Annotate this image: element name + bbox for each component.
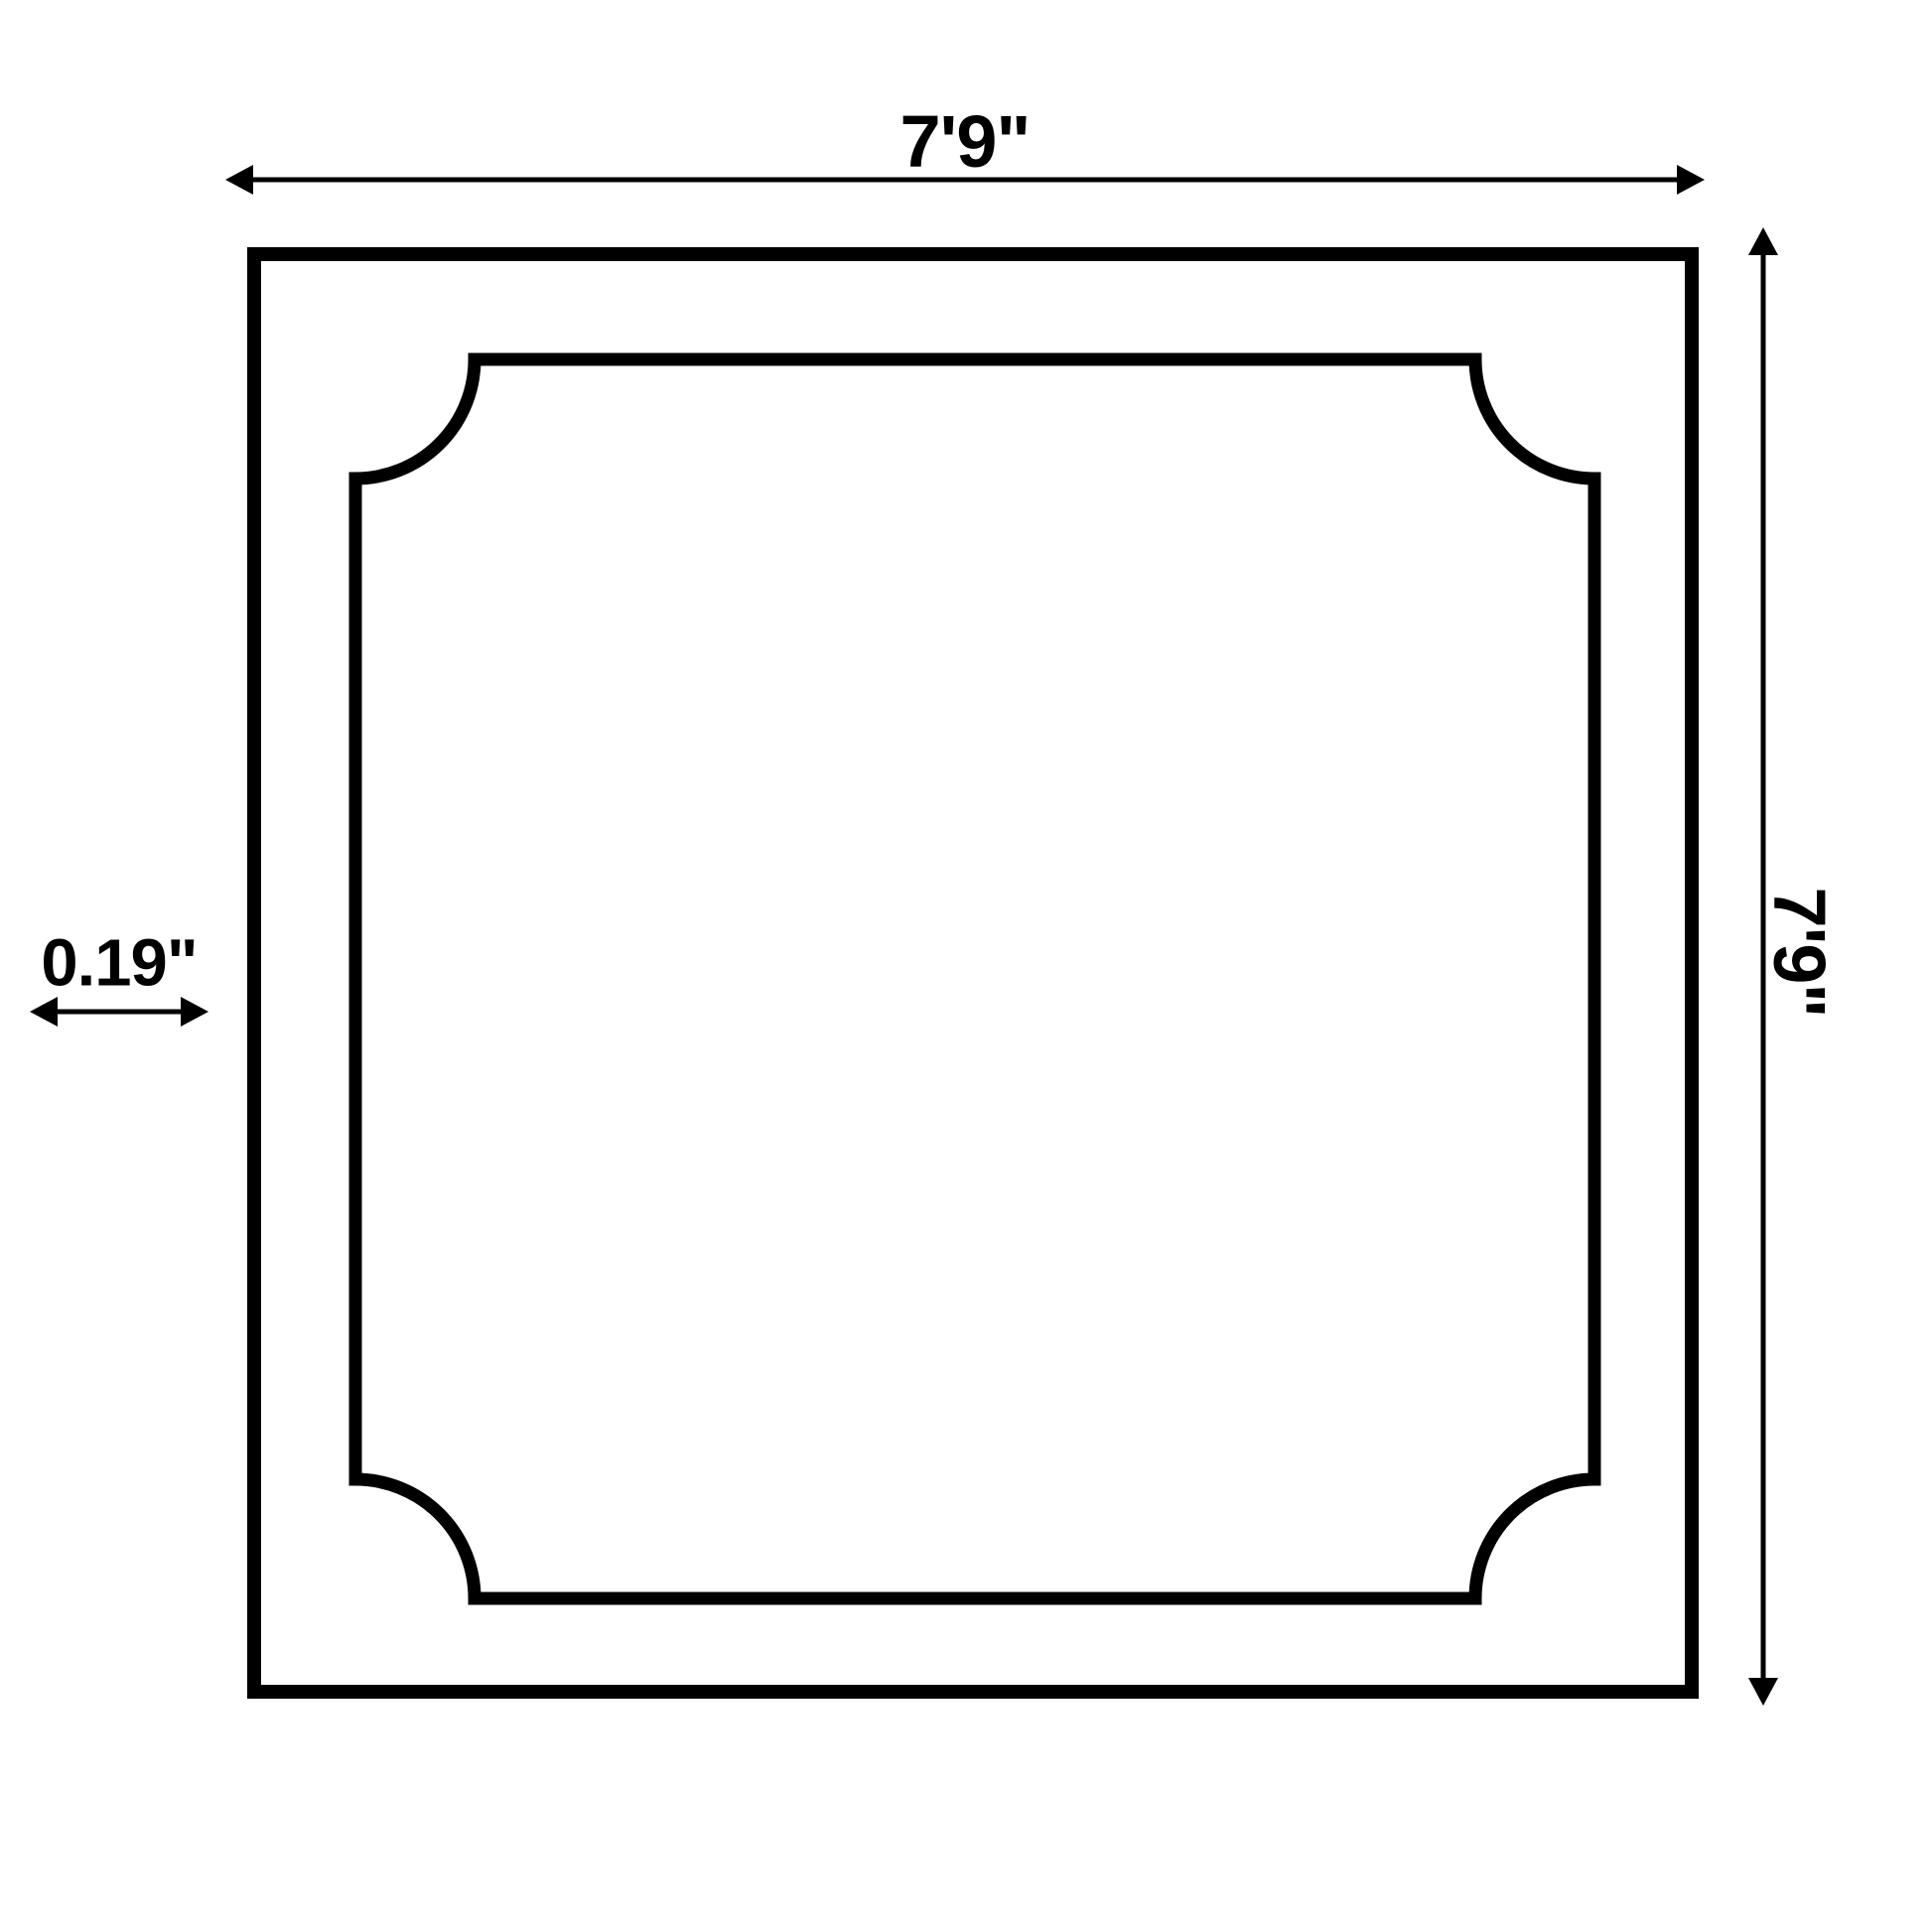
top-width-label: 7'9" [900, 105, 1031, 179]
right-dimension-arrow-down-icon [1748, 1678, 1778, 1706]
inner-panel-outline [355, 359, 1594, 1598]
right-height-label: 7'9" [1762, 888, 1836, 1018]
thickness-dimension [30, 997, 208, 1027]
thickness-arrow-left-icon [30, 997, 58, 1027]
dimension-diagram: 7'9" 7'9" 0.19" [0, 0, 1932, 1932]
top-dimension-arrow-right-icon [1677, 165, 1705, 195]
diagram-canvas [0, 0, 1932, 1932]
thickness-label: 0.19" [41, 930, 197, 997]
outer-frame-outline [254, 254, 1692, 1692]
top-dimension-arrow-left-icon [225, 165, 253, 195]
thickness-arrow-right-icon [181, 997, 208, 1027]
right-dimension-arrow-up-icon [1748, 227, 1778, 255]
